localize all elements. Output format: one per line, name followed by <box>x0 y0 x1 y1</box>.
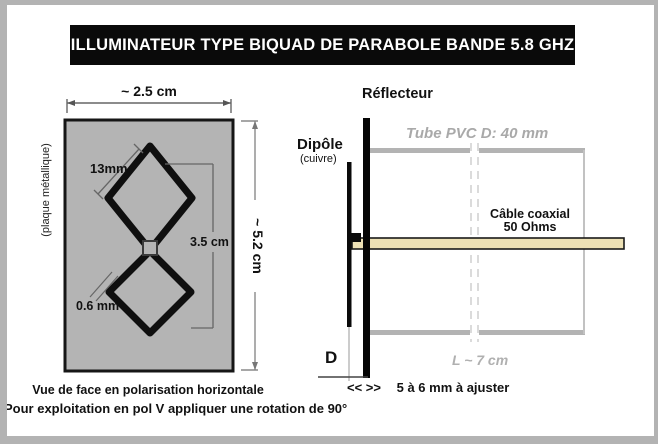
coax-cable-label: Câble coaxial 50 Ohms <box>470 208 590 233</box>
coax-cable-label-line1: Câble coaxial <box>470 208 590 221</box>
title-banner: ILLUMINATEUR TYPE BIQUAD DE PARABOLE BAN… <box>70 25 575 65</box>
reflector-element <box>363 118 370 378</box>
height-dimension-label: ~ 5.2 cm <box>250 218 266 274</box>
tube-label: Tube PVC D: 40 mm <box>406 125 548 142</box>
adjust-arrows-marker: << >> <box>347 380 381 395</box>
quad-side-label: 13mm <box>90 161 128 176</box>
width-arrow-right-icon <box>223 100 231 106</box>
reflector-label: Réflecteur <box>362 86 433 102</box>
dipole-material-label: (cuivre) <box>300 153 337 165</box>
front-view-caption: Vue de face en polarisation horizontale <box>20 383 276 397</box>
dipole-element <box>347 162 352 327</box>
coax-cable <box>352 238 624 249</box>
tube-length-label: L ~ 7 cm <box>452 352 508 368</box>
wire-diameter-label: 0.6 mm <box>76 299 119 313</box>
height-arrow-bottom-icon <box>252 362 258 370</box>
coax-cable-label-line2: 50 Ohms <box>470 221 590 234</box>
width-arrow-left-icon <box>67 100 75 106</box>
plate-material-label: (plaque métallique) <box>40 143 52 237</box>
diagram-page: ILLUMINATEUR TYPE BIQUAD DE PARABOLE BAN… <box>0 0 658 444</box>
loops-height-label: 3.5 cm <box>188 235 231 249</box>
feed-point <box>143 241 157 255</box>
width-dimension-label: ~ 2.5 cm <box>65 83 233 99</box>
adjust-note: << >> 5 à 6 mm à ajuster <box>347 380 509 395</box>
spacing-letter-label: D <box>325 348 337 368</box>
height-arrow-top-icon <box>252 121 258 129</box>
dipole-label: Dipôle <box>297 136 343 153</box>
polarization-note: Pour exploitation en pol V appliquer une… <box>4 401 326 416</box>
adjust-note-text: 5 à 6 mm à ajuster <box>397 380 510 395</box>
width-dimension-line <box>67 99 231 113</box>
